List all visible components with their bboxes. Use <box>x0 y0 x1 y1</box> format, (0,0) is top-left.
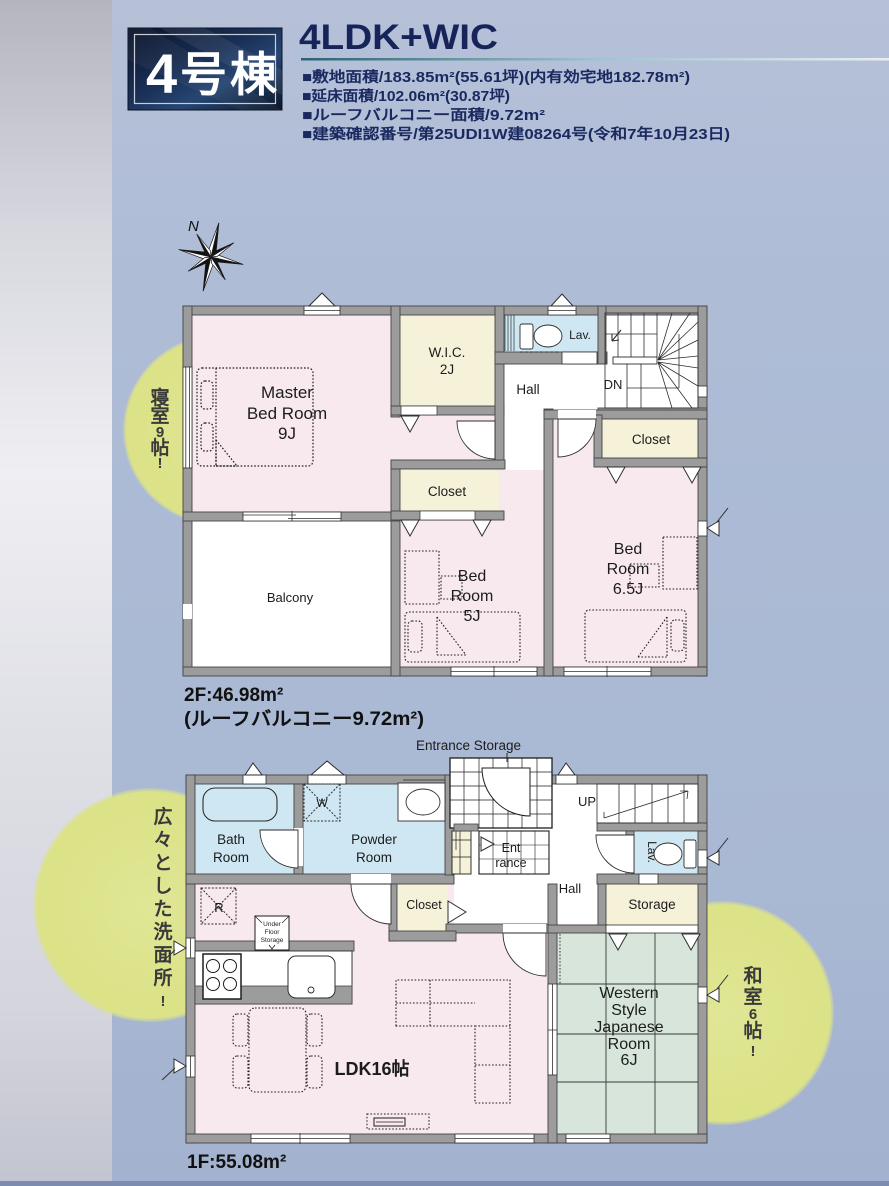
svg-text:Floor: Floor <box>265 929 281 936</box>
svg-text:Room: Room <box>213 850 249 865</box>
svg-text:々: 々 <box>153 829 172 851</box>
svg-text:6.5J: 6.5J <box>613 581 643 598</box>
svg-text:2F:46.98m²: 2F:46.98m² <box>184 685 283 706</box>
svg-text:室: 室 <box>743 985 762 1008</box>
svg-text:Under: Under <box>263 921 282 928</box>
svg-text:4LDK+WIC: 4LDK+WIC <box>299 18 498 57</box>
svg-text:Japanese: Japanese <box>594 1019 663 1036</box>
svg-text:Room: Room <box>607 561 650 578</box>
svg-text:Powder: Powder <box>351 832 397 847</box>
svg-text:Room: Room <box>451 588 494 605</box>
svg-text:Western: Western <box>599 985 658 1002</box>
svg-text:N: N <box>188 218 199 235</box>
svg-text:!: ! <box>161 993 166 1010</box>
svg-text:R: R <box>214 900 223 915</box>
svg-text:Closet: Closet <box>632 432 671 447</box>
svg-text:Storage: Storage <box>628 897 675 912</box>
svg-text:Closet: Closet <box>428 484 467 499</box>
svg-text:■敷地面積/183.85m²(55.61坪)(内有効宅地18: ■敷地面積/183.85m²(55.61坪)(内有効宅地182.78m²) <box>302 68 690 86</box>
svg-text:Room: Room <box>356 850 392 865</box>
svg-text:!: ! <box>751 1043 756 1060</box>
svg-text:UP: UP <box>578 794 596 809</box>
svg-text:2J: 2J <box>440 362 454 377</box>
svg-text:し: し <box>153 876 172 897</box>
svg-text:Style: Style <box>611 1002 647 1019</box>
svg-text:rance: rance <box>495 856 526 870</box>
svg-text:和: 和 <box>743 964 762 987</box>
svg-text:1F:55.08m²: 1F:55.08m² <box>187 1152 286 1173</box>
svg-text:(ルーフバルコニー9.72m²): (ルーフバルコニー9.72m²) <box>184 708 424 730</box>
svg-text:Bath: Bath <box>217 832 245 847</box>
svg-text:Hall: Hall <box>559 881 582 896</box>
svg-text:Lav.: Lav. <box>645 841 659 863</box>
svg-text:W.I.C.: W.I.C. <box>429 345 466 360</box>
svg-text:洗: 洗 <box>153 920 172 943</box>
svg-text:■建築確認番号/第25UDI1W建08264号(令和7年10: ■建築確認番号/第25UDI1W建08264号(令和7年10月23日) <box>302 125 730 143</box>
svg-text:Hall: Hall <box>516 382 539 397</box>
svg-text:Entrance Storage: Entrance Storage <box>416 738 521 753</box>
svg-text:Bed: Bed <box>614 541 642 558</box>
svg-text:Bed Room: Bed Room <box>247 404 327 423</box>
svg-text:Master: Master <box>261 383 313 402</box>
svg-text:号棟: 号棟 <box>180 48 280 101</box>
svg-text:た: た <box>153 898 172 920</box>
svg-text:Storage: Storage <box>261 937 284 944</box>
svg-text:Closet: Closet <box>406 898 442 912</box>
svg-text:W: W <box>316 796 328 810</box>
svg-text:Bed: Bed <box>458 568 486 585</box>
svg-text:4: 4 <box>146 42 177 105</box>
svg-text:!: ! <box>158 455 163 472</box>
svg-text:Room: Room <box>608 1036 651 1053</box>
svg-text:所: 所 <box>153 967 172 989</box>
svg-text:■ルーフバルコニー面積/9.72m²: ■ルーフバルコニー面積/9.72m² <box>302 106 545 124</box>
svg-text:Lav.: Lav. <box>569 328 591 342</box>
svg-text:広: 広 <box>153 805 172 828</box>
svg-text:帖: 帖 <box>743 1019 762 1042</box>
svg-text:Balcony: Balcony <box>267 590 314 605</box>
svg-text:6J: 6J <box>621 1052 638 1069</box>
svg-text:9J: 9J <box>278 424 296 443</box>
svg-text:と: と <box>153 853 172 874</box>
svg-text:■延床面積/102.06m²(30.87坪): ■延床面積/102.06m²(30.87坪) <box>302 87 510 105</box>
svg-text:5J: 5J <box>464 608 481 625</box>
svg-text:DN: DN <box>604 377 623 392</box>
svg-text:Ent: Ent <box>502 841 521 855</box>
svg-text:LDK16帖: LDK16帖 <box>334 1058 409 1079</box>
